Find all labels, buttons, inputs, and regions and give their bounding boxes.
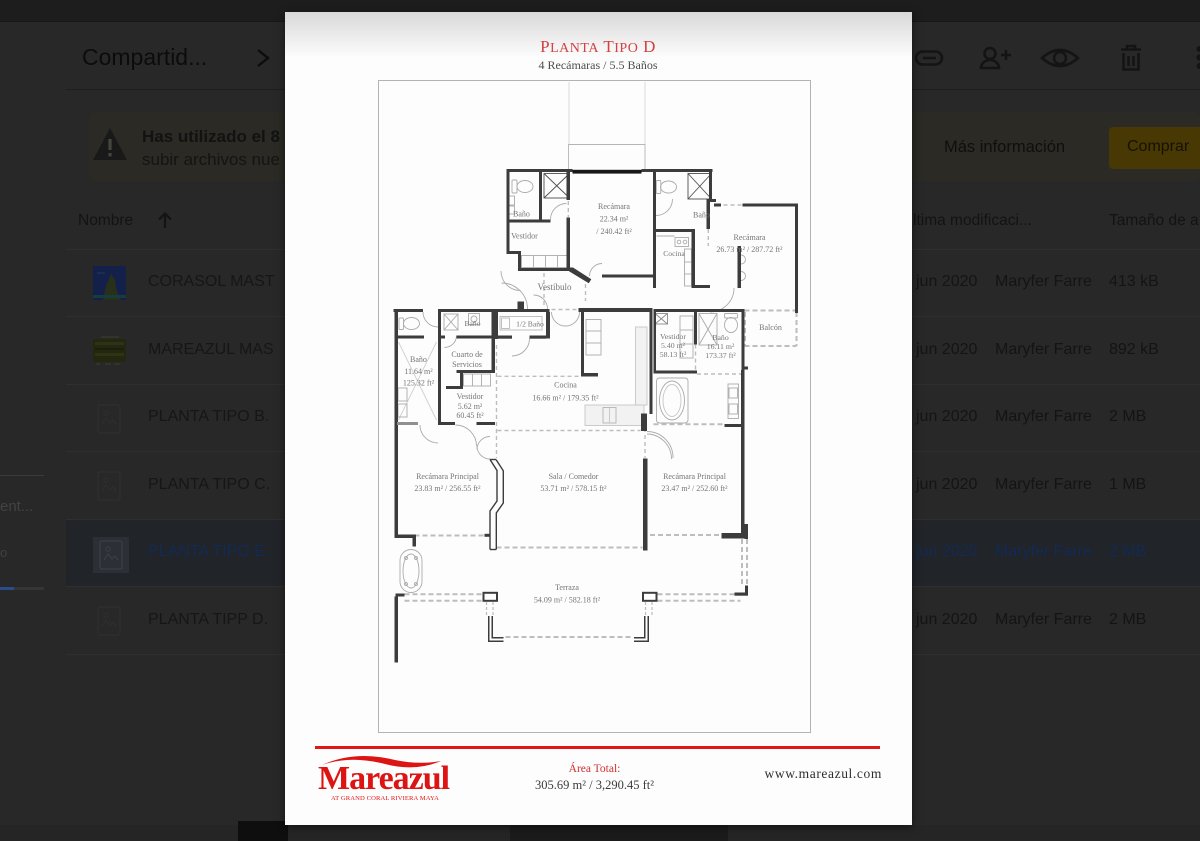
svg-text:Recámara Principal: Recámara Principal [416, 472, 480, 481]
svg-text:58.13 ft²: 58.13 ft² [659, 350, 686, 359]
svg-text:Baño: Baño [410, 355, 427, 364]
svg-text:5.62 m²: 5.62 m² [457, 402, 482, 411]
svg-text:Cocina: Cocina [663, 249, 685, 258]
svg-text:Mareazul: Mareazul [318, 760, 450, 797]
svg-text:Baño: Baño [513, 210, 530, 219]
svg-text:Vestidor: Vestidor [660, 332, 686, 341]
svg-text:Vestíbulo: Vestíbulo [537, 282, 572, 292]
svg-text:16.66 m² / 179.35 ft²: 16.66 m² / 179.35 ft² [532, 394, 599, 403]
svg-text:23.47 m² / 252.60 ft²: 23.47 m² / 252.60 ft² [661, 484, 728, 493]
svg-text:Vestidor: Vestidor [511, 232, 538, 241]
svg-text:Vestidor: Vestidor [456, 392, 483, 401]
svg-text:54.09 m² / 582.18 ft²: 54.09 m² / 582.18 ft² [533, 596, 600, 605]
svg-text:Cuarto de: Cuarto de [451, 350, 483, 359]
svg-text:22.34 m²: 22.34 m² [599, 215, 628, 224]
svg-text:5.40 m²: 5.40 m² [661, 341, 686, 350]
svg-text:Balcón: Balcón [759, 323, 782, 332]
svg-text:Terraza: Terraza [555, 583, 579, 592]
svg-text:Recámara Principal: Recámara Principal [663, 472, 727, 481]
svg-text:Baño: Baño [464, 319, 480, 328]
svg-text:16.11 m²: 16.11 m² [706, 342, 734, 351]
svg-text:1/2 Baño: 1/2 Baño [516, 320, 544, 329]
svg-text:23.83 m² / 256.55 ft²: 23.83 m² / 256.55 ft² [414, 484, 481, 493]
svg-text:/ 240.42 ft²: / 240.42 ft² [596, 227, 632, 236]
svg-text:Sala / Comedor: Sala / Comedor [548, 472, 598, 481]
svg-text:Recámara: Recámara [733, 233, 765, 242]
svg-text:Recámara: Recámara [598, 202, 630, 211]
svg-text:AT GRAND CORAL RIVIERA MAYA: AT GRAND CORAL RIVIERA MAYA [331, 795, 439, 802]
svg-text:125.32 ft²: 125.32 ft² [402, 379, 434, 388]
svg-text:Servicios: Servicios [452, 360, 482, 369]
svg-text:11.64 m²: 11.64 m² [404, 367, 433, 376]
svg-text:Baño: Baño [693, 211, 710, 220]
svg-text:60.45 ft²: 60.45 ft² [456, 411, 484, 420]
svg-text:26.73 m² / 287.72 ft²: 26.73 m² / 287.72 ft² [716, 245, 783, 254]
svg-text:53.71 m² / 578.15 ft²: 53.71 m² / 578.15 ft² [540, 484, 607, 493]
svg-text:173.37 ft²: 173.37 ft² [705, 351, 736, 360]
svg-text:Baño: Baño [712, 333, 729, 342]
svg-text:Cocina: Cocina [554, 381, 577, 390]
